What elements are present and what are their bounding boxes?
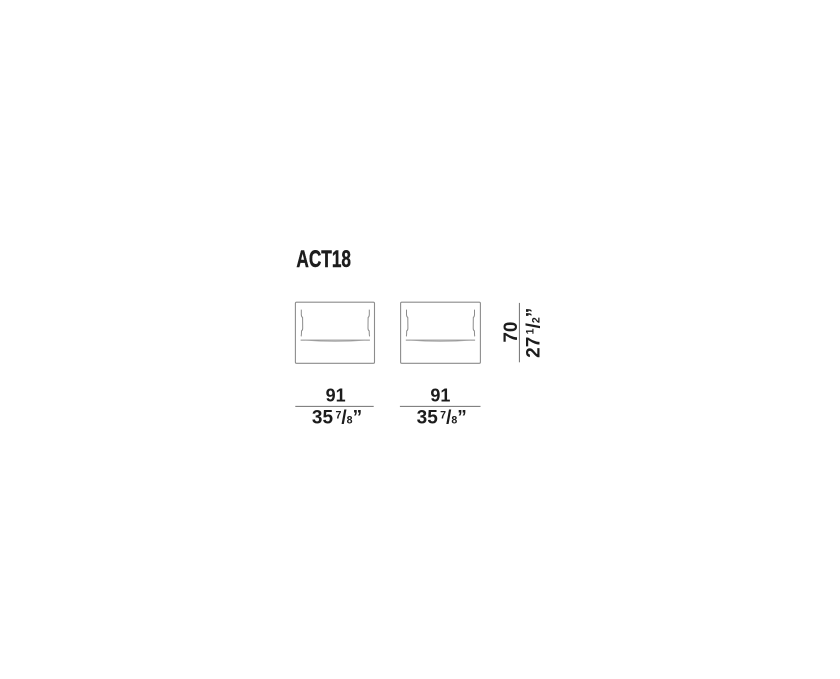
svg-text:91: 91 [326,386,346,406]
svg-text:91: 91 [430,386,450,406]
svg-text:ACT18: ACT18 [296,246,351,273]
svg-text:70: 70 [501,322,522,343]
